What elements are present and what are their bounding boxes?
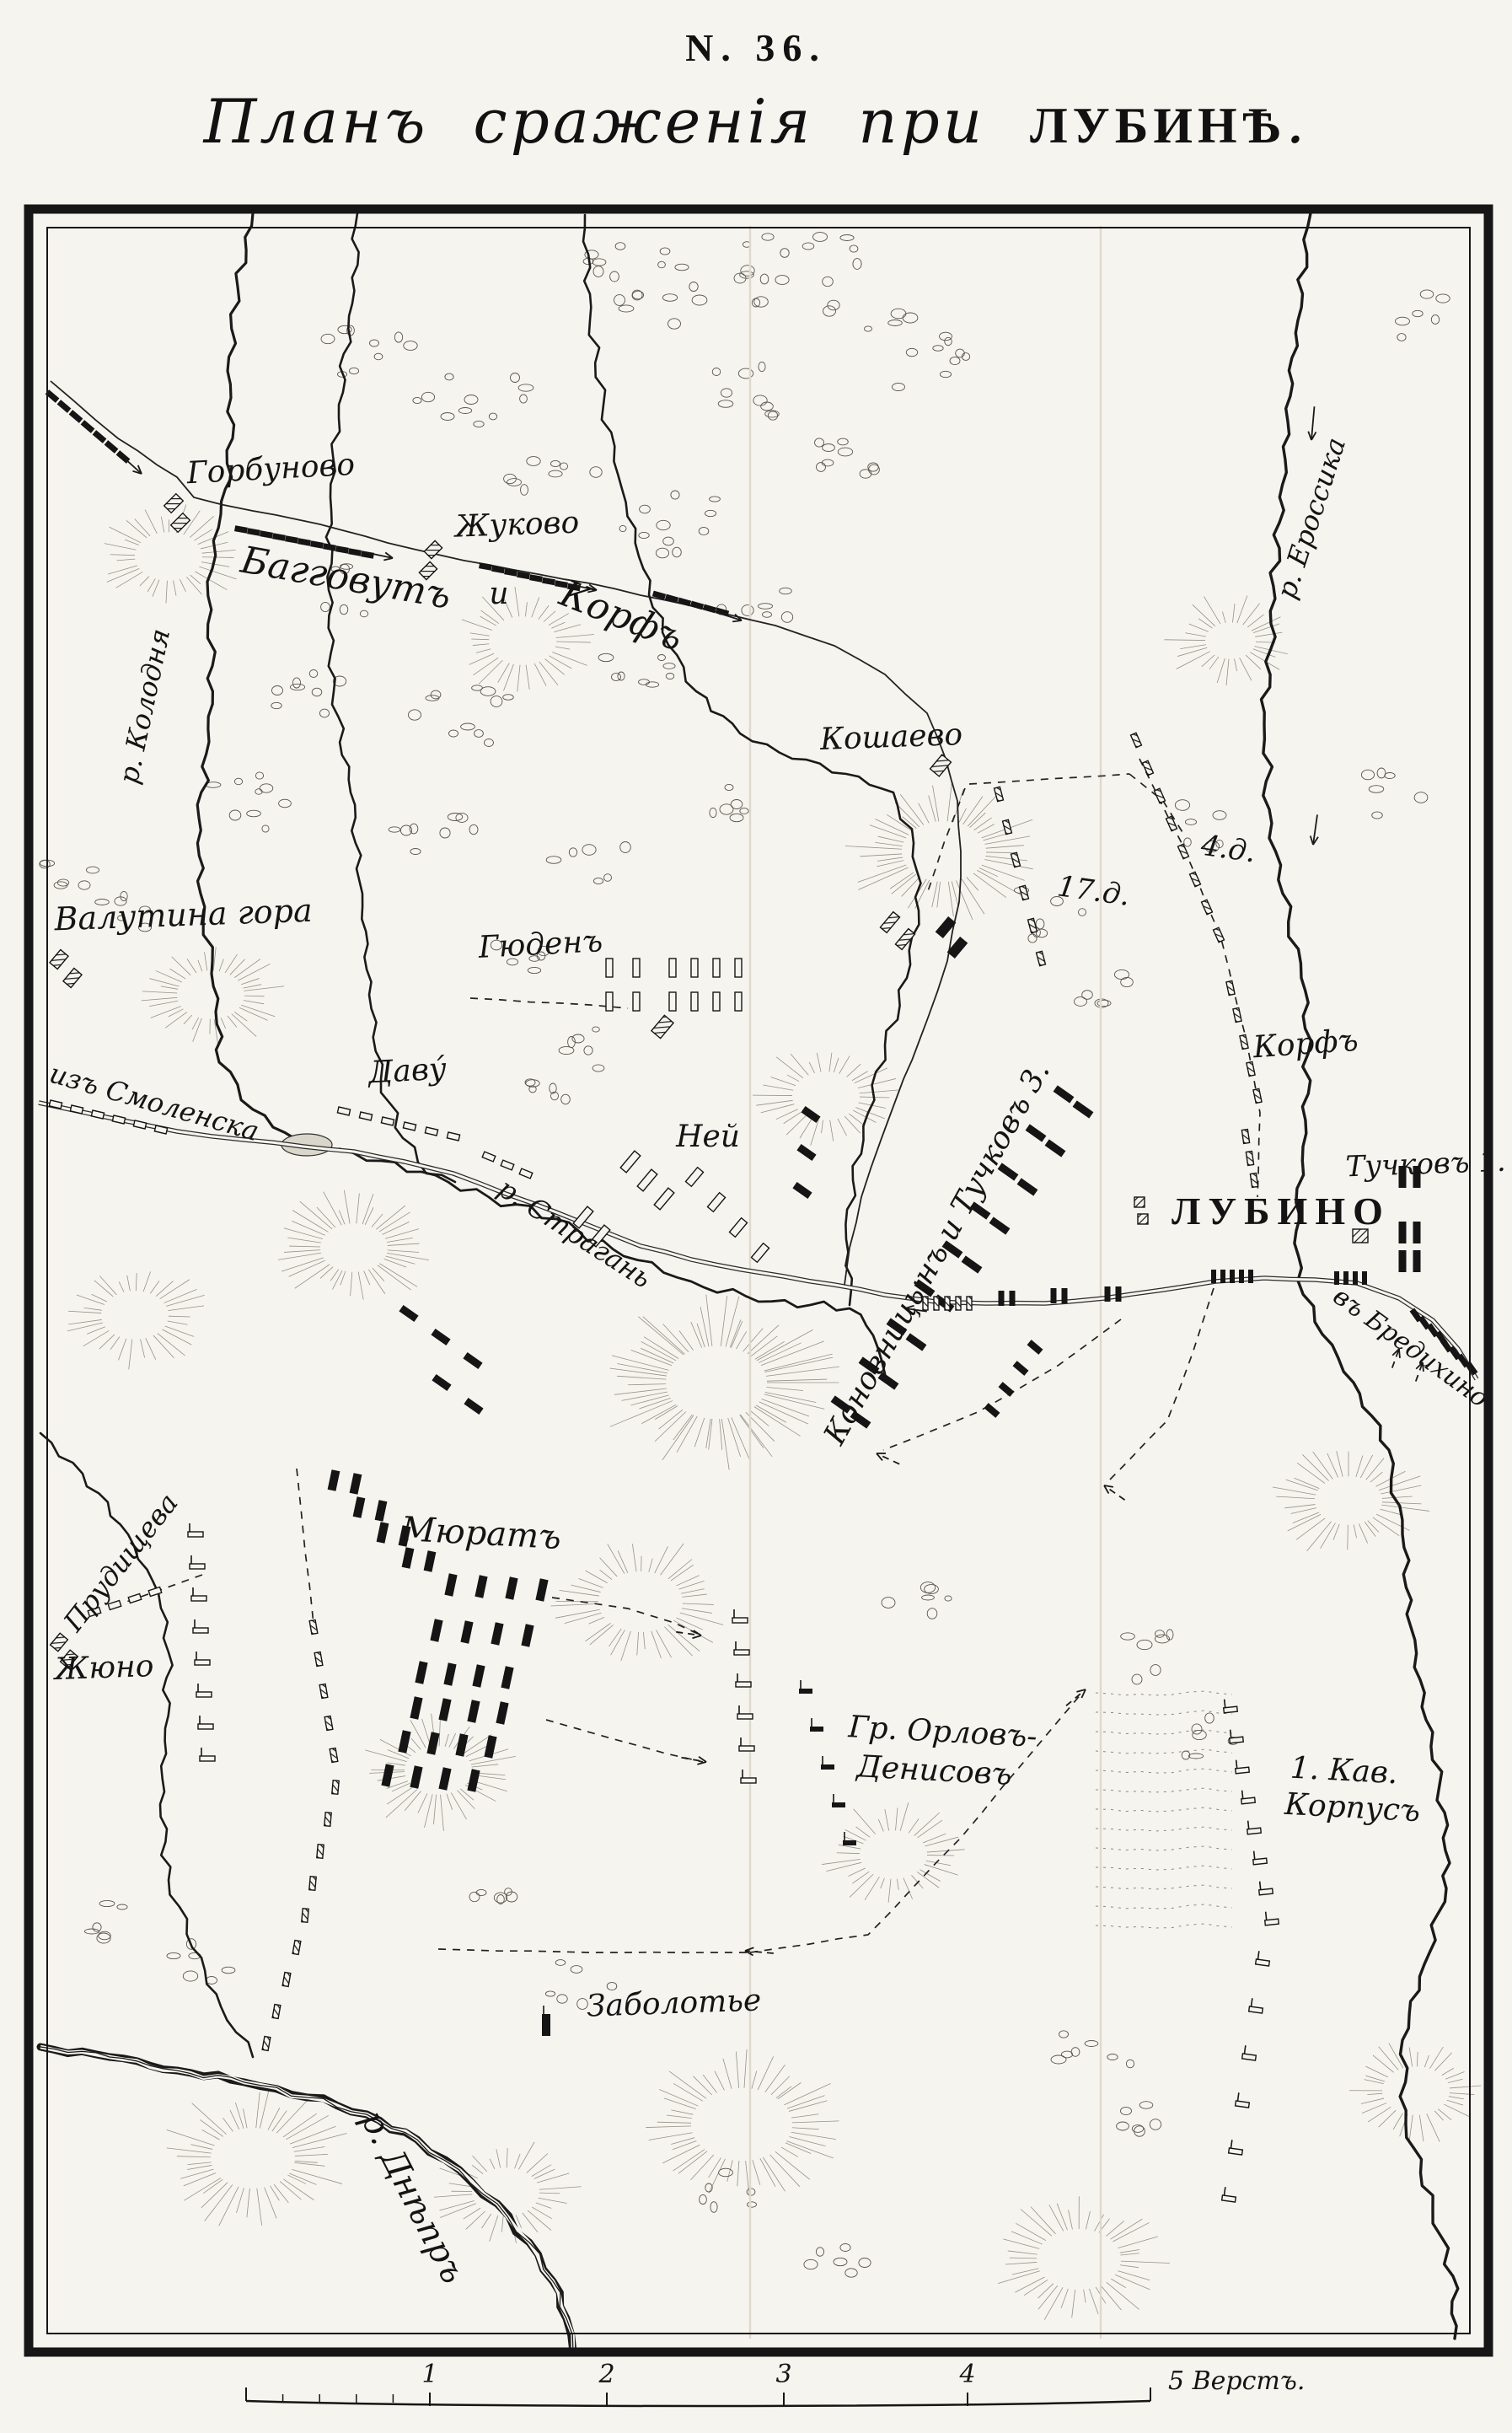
label-v-bredikhino: въ Бредихино — [1327, 1281, 1493, 1414]
troop-unit — [443, 1662, 456, 1686]
troop-unit — [133, 1120, 146, 1129]
label-lubino: ЛУБИНО — [1172, 1190, 1391, 1233]
troop-unit — [467, 1769, 480, 1792]
label-i-conjunction: и — [489, 577, 508, 611]
troop-unit — [359, 1112, 372, 1120]
troop-unit — [193, 1628, 208, 1633]
troop-unit-group — [1222, 1951, 1271, 2202]
troop-unit — [285, 535, 298, 543]
troop-unit — [1399, 1222, 1407, 1243]
troop-unit-group — [1134, 1197, 1148, 1224]
troop-unit — [1116, 1286, 1122, 1302]
troop-unit — [799, 1689, 812, 1694]
scale-number: 3 — [775, 2360, 791, 2389]
troop-unit — [381, 1764, 394, 1787]
troop-unit — [1334, 1271, 1339, 1285]
label-davout: Даву́ — [366, 1052, 448, 1091]
troop-unit-group — [309, 1620, 338, 1763]
troop-unit — [319, 1684, 328, 1699]
troop-unit-group — [620, 1151, 674, 1210]
troop-unit — [810, 1727, 823, 1732]
troop-unit — [1028, 918, 1037, 932]
troop-unit-group — [669, 959, 742, 977]
troop-unit — [1138, 1214, 1148, 1224]
troop-unit — [519, 1168, 533, 1179]
troop-unit — [51, 1633, 68, 1652]
troop-unit — [164, 494, 184, 513]
troop-unit — [821, 1764, 834, 1770]
troop-unit-group — [1105, 1286, 1122, 1302]
troop-unit — [984, 1403, 1000, 1418]
troop-unit — [402, 1547, 415, 1569]
unit-flag — [1224, 2187, 1225, 2195]
troop-unit — [1240, 1034, 1248, 1049]
troop-unit — [1010, 1291, 1016, 1306]
label-orlov: Гр. Орловъ- — [847, 1710, 1038, 1754]
troop-unit — [736, 1682, 751, 1687]
troop-unit — [995, 787, 1004, 801]
troop-unit — [330, 1748, 338, 1763]
troop-unit-group — [995, 787, 1046, 965]
troop-unit — [1054, 1085, 1075, 1103]
troop-unit — [323, 543, 336, 551]
troop-unit — [324, 1813, 331, 1827]
troop-unit-group — [792, 1106, 820, 1199]
troop-unit — [1131, 733, 1142, 747]
label-denisov: Денисовъ — [855, 1749, 1013, 1792]
troop-unit — [930, 755, 952, 776]
troop-unit — [729, 1218, 747, 1238]
dashed-route — [1108, 1288, 1214, 1481]
label-river-kolodnya: р. Колодня — [112, 626, 176, 787]
unit-flag — [1248, 1821, 1249, 1829]
troop-unit-group — [930, 755, 952, 776]
troop-unit — [505, 1576, 517, 1600]
arrow — [1066, 1689, 1086, 1705]
movement-arrows — [126, 406, 1424, 1955]
label-river-stragan: р. Страгань — [492, 1172, 657, 1295]
troop-unit — [637, 1169, 657, 1191]
troop-unit — [317, 1845, 324, 1859]
stream-upper — [326, 213, 455, 1182]
troop-unit-group — [606, 959, 640, 977]
troop-unit — [234, 525, 248, 533]
label-zhukovo: Жуково — [452, 505, 579, 544]
troop-unit — [482, 1152, 496, 1162]
troop-unit-group — [328, 1469, 362, 1495]
troop-unit — [501, 1666, 513, 1689]
troop-unit — [956, 1297, 961, 1310]
unit-flag — [1266, 1912, 1267, 1920]
troop-unit — [1233, 1007, 1241, 1022]
troop-unit — [633, 959, 640, 977]
troop-unit — [535, 1578, 548, 1602]
troop-positions — [46, 389, 1478, 2202]
label-valutina-gora: Валутина гора — [53, 892, 314, 938]
movement-dashes — [126, 759, 1260, 1952]
troop-unit — [431, 1329, 450, 1345]
troop-unit — [292, 1941, 301, 1955]
troop-unit — [247, 528, 260, 535]
unit-flag — [1237, 2092, 1238, 2101]
troop-unit-group — [1399, 1222, 1421, 1243]
troop-unit — [735, 959, 742, 977]
troop-unit — [832, 1802, 845, 1807]
troop-unit — [350, 1473, 362, 1495]
scale-bar: 12345 Верстъ. — [246, 2360, 1305, 2406]
unit-flag — [1236, 1760, 1237, 1769]
troop-unit — [196, 1692, 212, 1697]
troop-unit — [1230, 1270, 1235, 1283]
troop-unit — [732, 1618, 748, 1623]
troop-unit — [737, 1714, 753, 1719]
troop-unit — [703, 604, 716, 614]
arrow — [1104, 1485, 1125, 1500]
unit-flag — [1244, 2045, 1245, 2054]
troop-unit — [491, 566, 505, 573]
label-tuchkov1: Тучковъ 1. — [1345, 1145, 1506, 1184]
label-junot: Жюно — [51, 1649, 154, 1687]
troop-unit — [1202, 900, 1213, 914]
troop-unit-group — [410, 1696, 508, 1725]
troop-unit — [302, 1909, 308, 1923]
meadow-texture — [1096, 1691, 1232, 1928]
troop-unit — [1017, 1178, 1038, 1195]
troop-unit — [328, 1469, 340, 1491]
troop-unit — [967, 1297, 972, 1310]
troop-unit — [335, 545, 349, 553]
troop-unit — [1020, 885, 1029, 900]
troop-unit-group — [1399, 1250, 1421, 1272]
troop-unit-group — [444, 1573, 548, 1602]
troop-unit — [314, 1652, 323, 1667]
scale-number: 1 — [421, 2360, 437, 2389]
troop-unit — [1214, 927, 1225, 942]
troop-unit-group — [399, 1305, 482, 1369]
troop-unit — [410, 1765, 422, 1789]
troop-unit — [1134, 1197, 1145, 1207]
troop-unit — [415, 1661, 427, 1684]
unit-flag — [1260, 1882, 1261, 1890]
troop-unit — [447, 1132, 459, 1141]
troop-unit — [348, 548, 362, 556]
troop-unit — [63, 968, 82, 987]
troop-unit — [375, 1500, 388, 1522]
troop-unit — [191, 1596, 206, 1601]
troop-unit — [1013, 1361, 1029, 1376]
troop-unit — [444, 1573, 457, 1597]
troop-unit — [398, 1730, 410, 1754]
arrow — [877, 1453, 899, 1464]
scale-number: 4 — [958, 2360, 975, 2389]
scale-line — [246, 2401, 1150, 2406]
troop-unit — [620, 1151, 641, 1173]
dashed-route — [969, 774, 1129, 784]
troop-unit — [198, 1724, 213, 1729]
troop-unit — [713, 959, 720, 977]
scale-number: 2 — [598, 2360, 614, 2389]
label-konovnitsyn-tuchkov3: Коновницынъ и Тучковъ 3. — [817, 1055, 1057, 1451]
troop-unit — [633, 992, 640, 1011]
troop-unit — [739, 1746, 754, 1751]
troop-unit — [1353, 1271, 1358, 1285]
arrow — [126, 459, 142, 474]
troop-unit-group — [432, 1374, 483, 1415]
troop-unit — [91, 1110, 104, 1119]
troop-unit — [669, 992, 676, 1011]
unit-flag — [1242, 1791, 1243, 1799]
troop-unit — [260, 530, 273, 538]
troop-unit-group — [398, 1730, 496, 1759]
label-koshaevo: Кошаево — [818, 717, 962, 757]
troop-unit — [426, 1732, 439, 1755]
troop-unit — [1253, 1088, 1262, 1103]
troop-unit — [685, 1168, 703, 1187]
troop-unit-group — [669, 992, 742, 1011]
troop-unit — [1249, 2006, 1263, 2013]
troop-unit — [606, 992, 613, 1011]
troop-unit — [309, 1877, 316, 1891]
troop-unit — [195, 1660, 210, 1665]
unit-flag — [1251, 1998, 1252, 2006]
troop-unit — [843, 1840, 856, 1845]
troop-unit — [796, 1144, 816, 1161]
troop-unit — [735, 992, 742, 1011]
troop-unit — [1211, 1270, 1216, 1283]
dashed-route — [438, 1949, 748, 1952]
troop-unit-group — [606, 992, 640, 1011]
troop-unit — [190, 1564, 205, 1569]
troop-unit-group — [402, 1547, 437, 1572]
troop-unit — [381, 1117, 394, 1125]
troop-unit — [464, 1398, 483, 1415]
unit-flag — [1254, 1851, 1255, 1860]
troop-unit — [1073, 1100, 1094, 1118]
troop-unit — [475, 1575, 487, 1598]
troop-unit — [410, 1696, 422, 1720]
troop-unit — [430, 1619, 442, 1642]
troop-unit — [1229, 2148, 1243, 2155]
troop-unit — [606, 959, 613, 977]
troop-unit — [361, 551, 374, 558]
troop-unit — [57, 400, 72, 413]
troop-unit — [353, 1496, 366, 1518]
arrow — [1308, 406, 1316, 440]
troop-unit — [298, 538, 311, 545]
troop-unit — [1362, 1271, 1367, 1285]
troop-unit — [463, 1352, 482, 1369]
troop-unit — [651, 1015, 673, 1038]
troop-unit — [1045, 1139, 1066, 1157]
troop-unit — [128, 1594, 141, 1603]
arrow — [681, 1757, 706, 1764]
troop-unit-group — [1223, 1698, 1279, 1925]
label-gudin: Гюденъ — [477, 924, 603, 965]
troop-unit — [1220, 1270, 1225, 1283]
troop-unit — [1242, 2054, 1257, 2060]
troop-unit — [455, 1733, 468, 1757]
troop-unit — [272, 2005, 281, 2019]
troop-unit — [1248, 1270, 1253, 1283]
troop-unit — [70, 1105, 83, 1114]
label-murat: Мюратъ — [399, 1510, 561, 1557]
troop-unit — [690, 601, 704, 610]
label-korpus: Корпусъ — [1283, 1787, 1421, 1829]
troop-unit — [491, 1622, 503, 1646]
troop-unit — [69, 410, 83, 423]
troop-unit — [337, 1107, 350, 1115]
troop-unit-group — [262, 1941, 301, 2051]
troop-unit-group — [50, 949, 82, 987]
dashed-route — [297, 1469, 314, 1624]
troop-unit — [1051, 1288, 1057, 1303]
troop-unit — [669, 959, 676, 977]
unit-flag — [1231, 1730, 1231, 1738]
troop-unit — [377, 1522, 389, 1544]
dashed-route — [546, 1720, 703, 1762]
troop-unit — [93, 430, 107, 443]
troop-unit — [1166, 816, 1177, 830]
troop-unit-group — [46, 389, 131, 464]
troop-unit — [691, 992, 698, 1011]
label-korf-road: Корфъ — [553, 572, 689, 660]
troop-unit — [542, 577, 555, 585]
troop-unit — [521, 1624, 533, 1647]
troop-unit — [425, 1127, 437, 1136]
troop-unit — [1003, 819, 1012, 834]
troop-unit — [934, 1297, 939, 1310]
troop-unit — [1250, 1174, 1257, 1188]
map-sheet: N. 36. Планъ сраженія при ЛУБИНѢ. Горбун… — [0, 0, 1512, 2433]
troop-unit — [1062, 1288, 1068, 1303]
troop-unit — [200, 1756, 215, 1761]
troop-unit — [324, 1716, 333, 1731]
troop-unit-group — [337, 1107, 459, 1141]
troop-unit — [1105, 1286, 1111, 1302]
troop-unit-group — [430, 1619, 533, 1647]
troop-unit — [424, 540, 442, 558]
troop-unit-group — [984, 1340, 1043, 1418]
troop-unit — [424, 1550, 437, 1572]
map-labels: ГорбуновоЖуковоБагговутъиКорфъКошаево4.д… — [46, 433, 1507, 2290]
troop-unit — [332, 1780, 339, 1795]
troop-unit-group — [302, 1780, 339, 1923]
label-zabolotye: Заболотье — [586, 1983, 761, 2023]
troop-unit — [1239, 1270, 1244, 1283]
troop-unit — [188, 1532, 203, 1537]
troop-unit — [81, 420, 95, 433]
arrow — [1311, 814, 1318, 845]
unit-flag — [1225, 1700, 1225, 1708]
troop-unit-group — [188, 1523, 215, 1761]
troop-unit — [734, 1650, 749, 1655]
troop-unit — [989, 1216, 1011, 1234]
label-river-dnieper: р. Днѣпръ — [352, 2104, 472, 2290]
troop-unit — [1256, 1959, 1270, 1966]
troop-unit — [432, 1374, 451, 1391]
troop-unit-group — [732, 1609, 756, 1783]
troop-unit — [1037, 951, 1046, 965]
troop-unit — [496, 1701, 508, 1725]
troop-unit — [945, 1297, 950, 1310]
troop-unit — [479, 562, 492, 570]
troop-unit — [1399, 1250, 1407, 1272]
label-division-4: 4.д. — [1198, 829, 1258, 870]
troop-unit — [1190, 872, 1201, 886]
troop-unit — [1226, 980, 1235, 995]
troop-unit — [1155, 788, 1166, 803]
troop-unit — [1413, 1250, 1421, 1272]
troop-unit — [472, 1664, 485, 1688]
troop-unit — [962, 1255, 983, 1273]
troop-unit — [467, 1700, 480, 1723]
troop-unit — [999, 1382, 1015, 1397]
troop-unit-group — [799, 1680, 856, 1845]
troop-unit — [529, 574, 543, 582]
troop-unit — [713, 992, 720, 1011]
troop-unit-group — [1241, 1130, 1257, 1188]
troop-unit — [691, 959, 698, 977]
troop-unit — [1027, 1340, 1043, 1355]
troop-unit-group — [381, 1764, 480, 1792]
troop-unit — [309, 1620, 318, 1635]
troop-unit — [310, 540, 324, 548]
troop-unit — [792, 1182, 812, 1199]
troop-unit — [751, 1243, 769, 1263]
troop-unit — [1413, 1222, 1421, 1243]
troop-unit — [1222, 2195, 1236, 2202]
unit-flag — [1257, 1951, 1258, 1959]
label-kav-1: 1. Кав. — [1289, 1751, 1398, 1791]
troop-unit-group — [164, 494, 190, 533]
troop-unit — [501, 1160, 514, 1170]
troop-unit — [1236, 2101, 1250, 2108]
dashed-route — [552, 1598, 698, 1634]
troop-unit — [1143, 760, 1154, 775]
troop-unit — [438, 1767, 451, 1791]
troop-unit-group — [685, 1168, 769, 1263]
troop-unit — [1241, 1130, 1249, 1144]
troop-unit — [654, 1188, 674, 1210]
troop-unit — [438, 1698, 451, 1721]
troop-unit — [105, 440, 119, 454]
troop-unit — [707, 1193, 725, 1212]
troop-unit — [272, 533, 286, 540]
troop-unit — [403, 1122, 416, 1131]
battle-map: ГорбуновоЖуковоБагговутъиКорфъКошаево4.д… — [0, 0, 1512, 2433]
troop-unit — [678, 598, 691, 607]
troop-unit — [1026, 1124, 1047, 1141]
troop-unit — [112, 1115, 125, 1124]
troop-unit-group — [651, 1015, 673, 1038]
dashed-route — [470, 998, 628, 1008]
label-ney: Ней — [675, 1120, 740, 1154]
unit-flag — [1231, 2140, 1231, 2148]
troop-unit-group — [415, 1661, 513, 1689]
troop-unit — [880, 912, 899, 933]
troop-unit — [999, 1291, 1005, 1306]
troop-unit-group — [542, 2006, 550, 2036]
label-korf-corps: Корфъ — [1252, 1023, 1359, 1066]
troop-unit — [460, 1620, 473, 1644]
troop-unit — [741, 1778, 756, 1783]
label-division-17: 17.д. — [1055, 869, 1132, 913]
troop-unit — [542, 2014, 550, 2036]
troop-unit-group — [353, 1496, 388, 1522]
troop-unit — [262, 2037, 271, 2051]
stream-koshaevo — [583, 215, 921, 1305]
scale-end-label: 5 Верстъ. — [1168, 2366, 1305, 2396]
